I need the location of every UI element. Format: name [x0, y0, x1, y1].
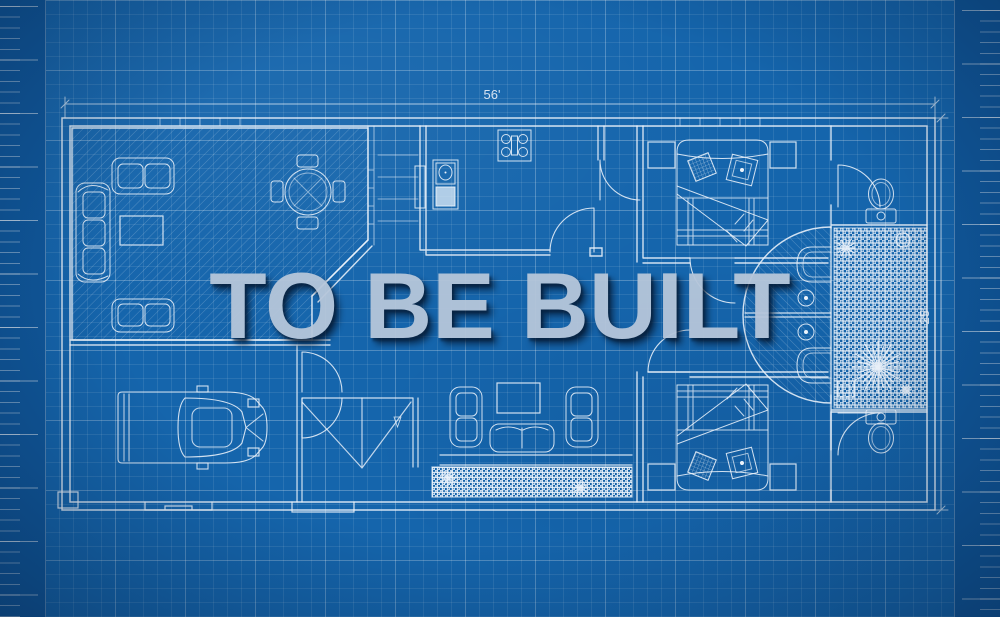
- family-room: [432, 383, 632, 497]
- dimension-top: 56': [61, 87, 939, 118]
- car: [118, 386, 267, 469]
- kitchen: [378, 126, 602, 256]
- kitchen-door: [550, 208, 594, 252]
- nightstand: [648, 142, 675, 168]
- family-room-wall-band: [440, 455, 632, 465]
- patio-strip: [432, 467, 632, 497]
- armchair-right: [566, 387, 598, 447]
- toilet-room-top: [831, 126, 927, 228]
- kitchen-sink-counter: [415, 160, 458, 209]
- watermark-text: TO BE BUILT: [209, 252, 790, 360]
- toilet-room-bottom: [831, 410, 896, 502]
- bathroom: [834, 228, 927, 408]
- pantry-shelves: [378, 155, 418, 221]
- media-table: [497, 383, 540, 413]
- armchair-left: [450, 387, 482, 447]
- bed-top: [677, 140, 768, 246]
- toilet-top: [866, 179, 896, 223]
- nightstand: [770, 464, 796, 490]
- wc-bottom-door: [838, 413, 880, 455]
- loveseat-center: [490, 424, 554, 452]
- living-room-window-ticks: [368, 126, 374, 245]
- nightstand: [770, 142, 796, 168]
- dimension-width-label: 56': [484, 87, 501, 102]
- nightstand: [648, 464, 675, 490]
- bed-bottom: [677, 384, 768, 490]
- stove: [498, 130, 531, 161]
- blueprint-sheet: 56' 25': [0, 0, 1000, 617]
- toilet-bottom: [866, 410, 896, 453]
- entry-closet: [297, 345, 418, 502]
- garage: [118, 386, 267, 469]
